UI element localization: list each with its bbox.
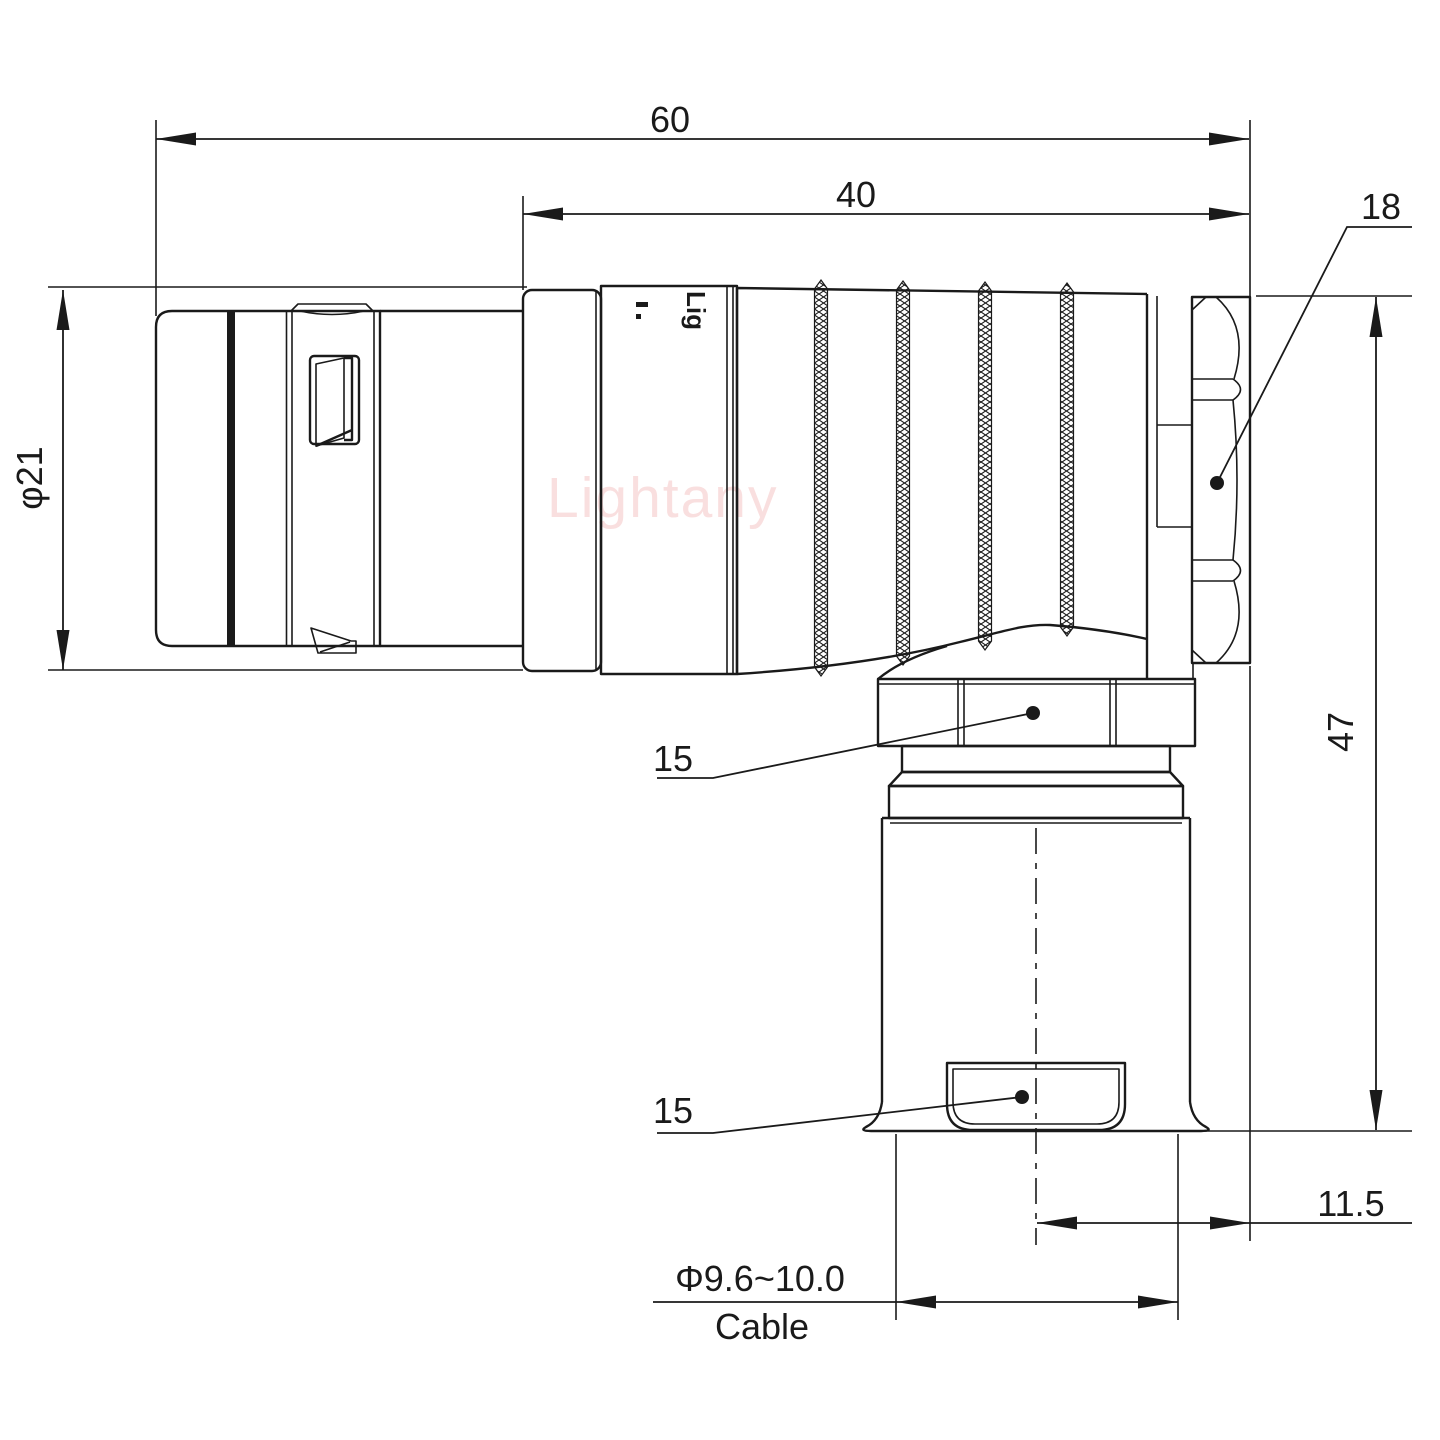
- leader-15-lower-label: 15: [653, 1090, 693, 1131]
- body-stamp: Lig: [681, 291, 711, 330]
- cable-caption: Cable: [715, 1306, 809, 1347]
- dim-47-label: 47: [1320, 712, 1361, 752]
- cable-diameter-label: Φ9.6~10.0: [675, 1258, 845, 1299]
- dim-11-5-label: 11.5: [1317, 1183, 1384, 1224]
- knurl-strip: [1061, 283, 1074, 636]
- technical-drawing: Lightany: [0, 0, 1440, 1440]
- dim-40-label: 40: [836, 174, 876, 215]
- dia-21-label: φ21: [9, 446, 50, 509]
- stamp-mark: [636, 302, 648, 307]
- knurl-strip: [897, 281, 910, 665]
- shell-black-band: [227, 311, 235, 646]
- leader-18-label: 18: [1361, 186, 1401, 227]
- leader-15-upper-label: 15: [653, 738, 693, 779]
- knurl-strip: [815, 280, 828, 676]
- dim-60-label: 60: [650, 99, 690, 140]
- stamp-mark: [636, 314, 641, 319]
- knurl-strip: [979, 282, 992, 650]
- watermark: Lightany: [547, 466, 779, 530]
- drawing-sheet: Lightany: [0, 0, 1440, 1440]
